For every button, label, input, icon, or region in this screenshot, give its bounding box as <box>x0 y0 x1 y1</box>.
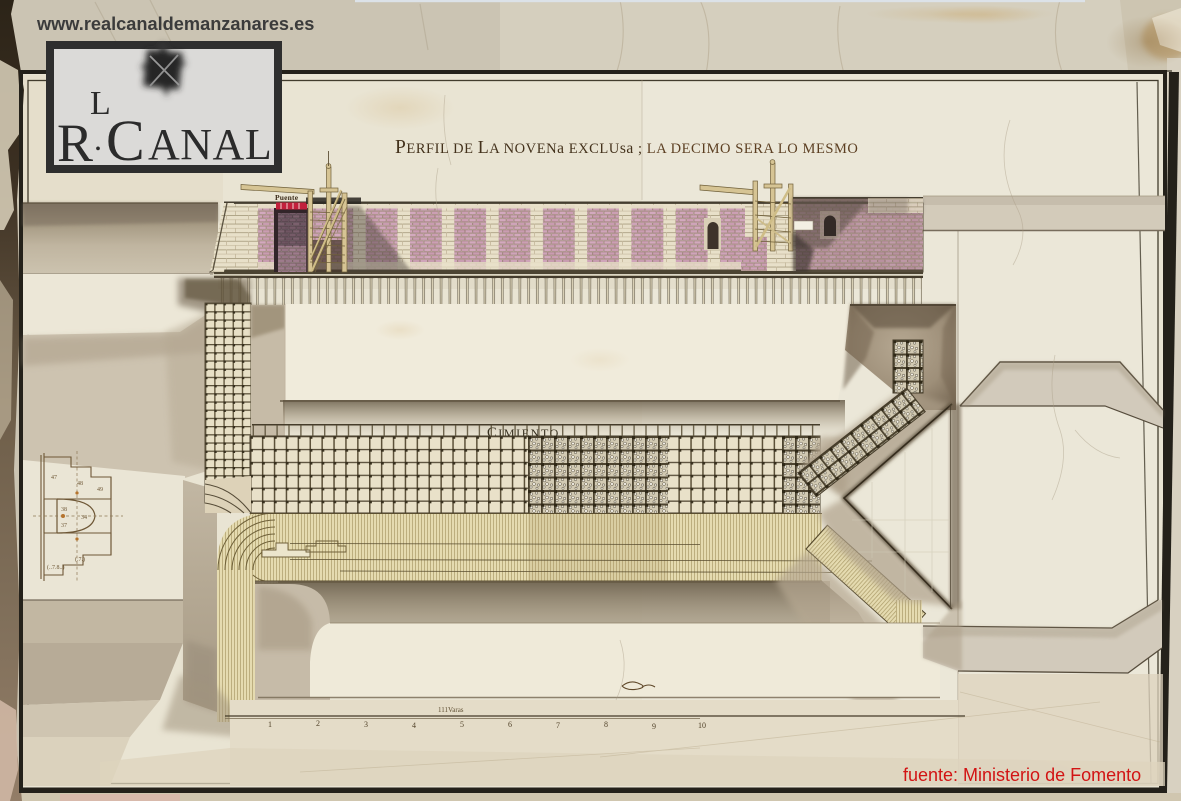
svg-text:48: 48 <box>77 481 83 487</box>
svg-text:1: 1 <box>268 720 272 729</box>
svg-text:111Varas: 111Varas <box>438 706 464 714</box>
svg-text:8: 8 <box>604 720 608 729</box>
svg-text:37: 37 <box>61 523 67 529</box>
svg-text:Puente: Puente <box>275 193 299 202</box>
svg-text:.: . <box>94 121 102 157</box>
svg-text:www.realcanaldemanzanares.es: www.realcanaldemanzanares.es <box>36 14 314 34</box>
svg-text:34: 34 <box>81 515 87 521</box>
svg-text:6: 6 <box>508 720 512 729</box>
svg-text:7: 7 <box>556 721 560 730</box>
svg-text:C: C <box>106 108 145 173</box>
svg-text:5: 5 <box>460 720 464 729</box>
svg-text:fuente: Ministerio de Fomento: fuente: Ministerio de Fomento <box>903 765 1141 785</box>
svg-text:4: 4 <box>412 721 416 730</box>
svg-text:ANAL: ANAL <box>148 120 272 169</box>
svg-text:(.7.): (.7.) <box>75 556 85 563</box>
svg-text:(..7.8..): (..7.8..) <box>47 564 65 571</box>
svg-text:R: R <box>57 113 93 173</box>
svg-text:10: 10 <box>698 721 706 730</box>
svg-text:9: 9 <box>652 722 656 731</box>
svg-text:38: 38 <box>61 507 67 513</box>
svg-text:49: 49 <box>97 487 103 493</box>
svg-text:2: 2 <box>316 719 320 728</box>
svg-text:3: 3 <box>364 720 368 729</box>
svg-text:PERFIL DE LA NOVENa EXCLUsa ;: PERFIL DE LA NOVENa EXCLUsa ; LA DECIMO … <box>395 137 858 158</box>
svg-text:47: 47 <box>51 475 57 481</box>
